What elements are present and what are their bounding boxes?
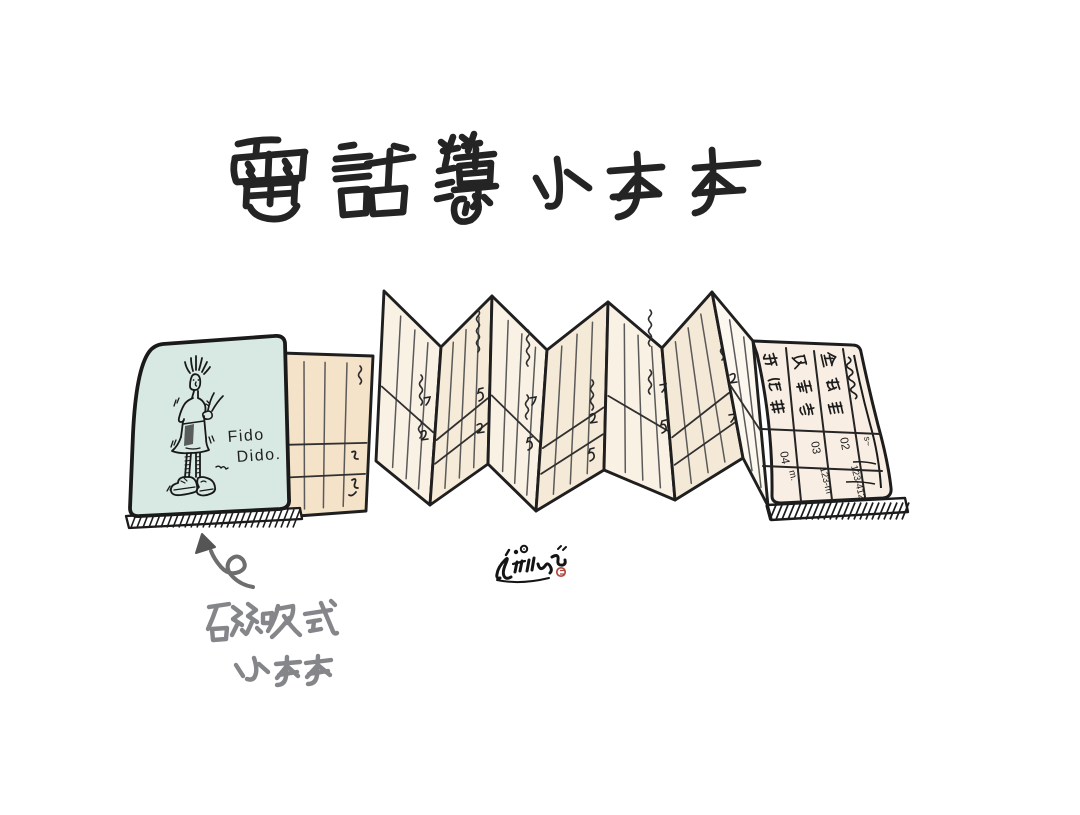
svg-text:Dido.: Dido. xyxy=(236,446,282,466)
svg-text:02: 02 xyxy=(837,436,851,451)
svg-text:s~: s~ xyxy=(862,436,874,447)
svg-text:03: 03 xyxy=(808,440,822,455)
svg-text:Fido: Fido xyxy=(227,426,265,446)
